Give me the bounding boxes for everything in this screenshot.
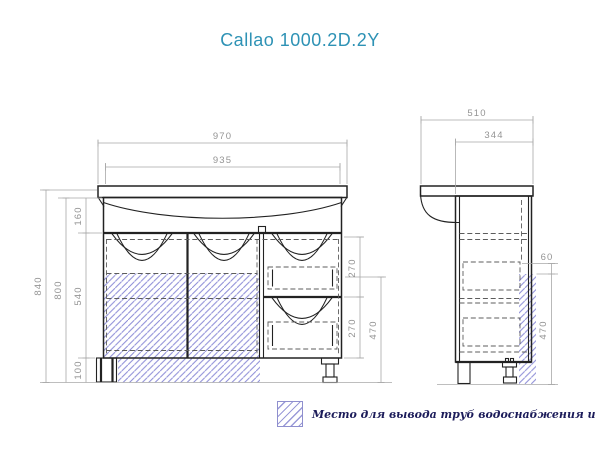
dim-overall-width: 970 (213, 131, 232, 142)
dim-front-pipe-zone: 470 (368, 320, 379, 339)
left-door-handle (112, 234, 172, 261)
top-drawer-handle (272, 234, 332, 261)
dim-cabinet-height: 800 (53, 280, 64, 299)
dim-basin-section: 160 (73, 206, 84, 225)
dim-cabinet-width: 935 (213, 155, 232, 166)
dim-door-section: 540 (73, 286, 84, 305)
front-pipe-zone-hatch (104, 274, 260, 383)
top-drawer-box (268, 267, 337, 289)
pipe-zone-hatch-swatch (277, 401, 303, 427)
side-bottom-drawer-box (463, 318, 520, 346)
front-view: 970 935 840 800 160 540 100 (33, 131, 392, 383)
basin-profile-curve (421, 194, 460, 223)
bottom-drawer-handle (272, 298, 332, 325)
side-dim-depths: 510 344 (421, 108, 533, 194)
dim-side-pipe-zone: 470 (538, 320, 549, 339)
dim-cabinet-depth: 344 (484, 130, 503, 141)
dim-pipe-zone-offset: 60 (541, 252, 554, 263)
bottom-drawer-box (268, 322, 337, 349)
front-countertop (98, 186, 347, 218)
legend-label: Место для вывода труб водоснабжения и ка… (312, 408, 600, 421)
side-top-drawer-box (463, 262, 520, 290)
dim-overall-depth: 510 (467, 108, 486, 119)
front-dim-widths: 970 935 (98, 131, 347, 184)
dim-leg-height: 100 (73, 360, 84, 379)
dim-top-drawer: 270 (347, 258, 358, 277)
basin-curve (104, 203, 342, 219)
side-hidden-lines (460, 200, 529, 352)
front-left-leg (97, 358, 117, 382)
side-countertop (421, 186, 534, 223)
right-door-handle (194, 234, 254, 261)
legend: Место для вывода труб водоснабжения и ка… (277, 399, 597, 429)
front-dim-drawers: 270 270 470 (344, 237, 386, 383)
side-back-leg (503, 359, 517, 384)
dim-overall-height: 840 (33, 276, 44, 295)
front-right-leg (322, 358, 339, 383)
technical-drawing: 970 935 840 800 160 540 100 (0, 0, 600, 450)
side-view: 510 344 60 470 (421, 108, 559, 385)
side-pipe-zone-hatch (519, 274, 536, 384)
dim-bottom-drawer: 270 (347, 318, 358, 337)
side-front-leg (458, 362, 470, 384)
